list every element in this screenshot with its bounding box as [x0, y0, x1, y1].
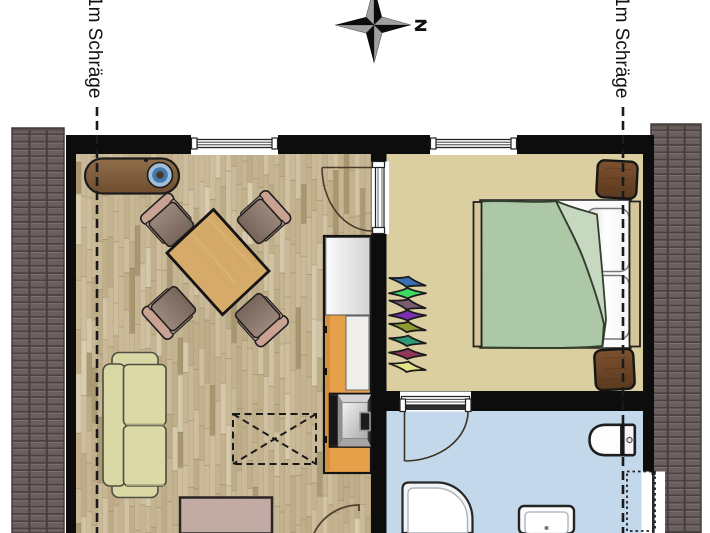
svg-text:1m Schräge: 1m Schräge [611, 0, 632, 98]
svg-text:1m Schräge: 1m Schräge [84, 0, 105, 98]
